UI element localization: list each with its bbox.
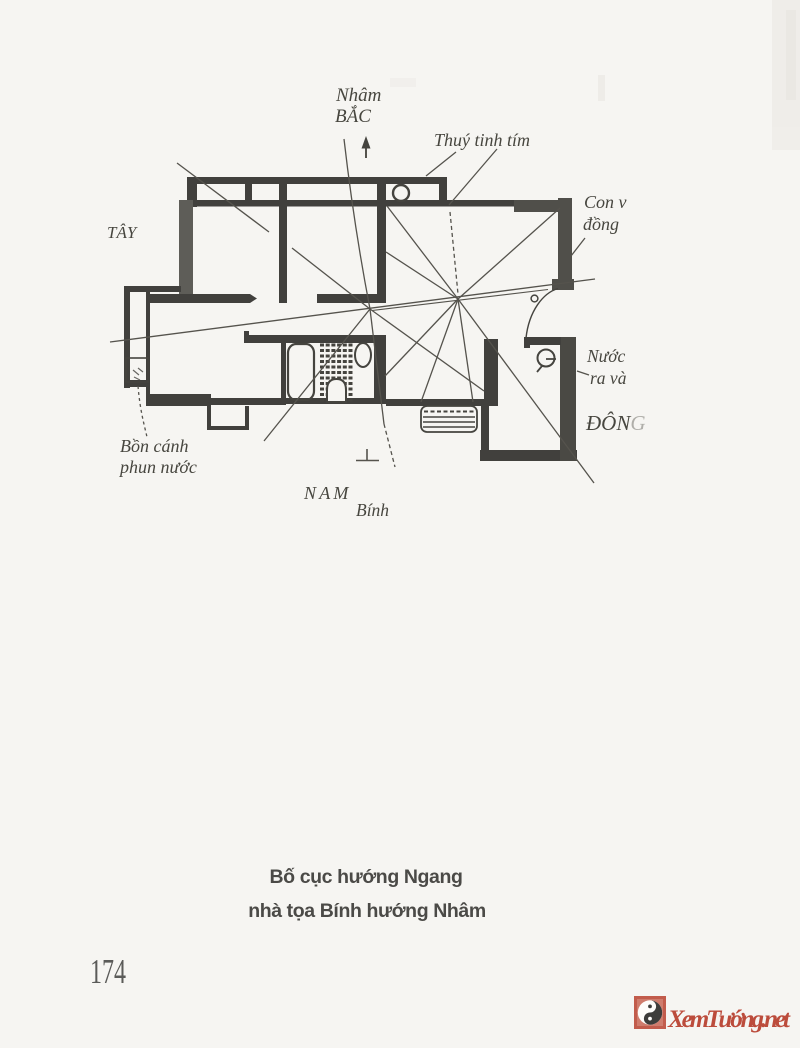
svg-text:XemTướng.net: XemTướng.net [667,1006,791,1033]
svg-text:Nước: Nước [586,346,626,366]
svg-text:Bính: Bính [356,500,389,520]
svg-text:Nhâm: Nhâm [335,85,381,106]
svg-text:ĐÔNG: ĐÔNG [585,411,646,435]
svg-text:NAM: NAM [303,483,352,503]
svg-text:174: 174 [90,952,126,991]
svg-text:Thuý tinh tím: Thuý tinh tím [434,130,530,150]
svg-text:Con v: Con v [584,192,627,212]
svg-text:nhà tọa Bính hướng Nhâm: nhà tọa Bính hướng Nhâm [248,900,486,922]
svg-text:TÂY: TÂY [107,223,138,242]
svg-text:Bố cục hướng Ngang: Bố cục hướng Ngang [269,866,462,888]
svg-text:đồng: đồng [583,214,619,234]
svg-text:Bồn cánh: Bồn cánh [120,436,188,456]
svg-text:ra và: ra và [590,368,627,388]
svg-text:phun nước: phun nước [118,457,197,477]
svg-text:BẮC: BẮC [335,105,371,127]
